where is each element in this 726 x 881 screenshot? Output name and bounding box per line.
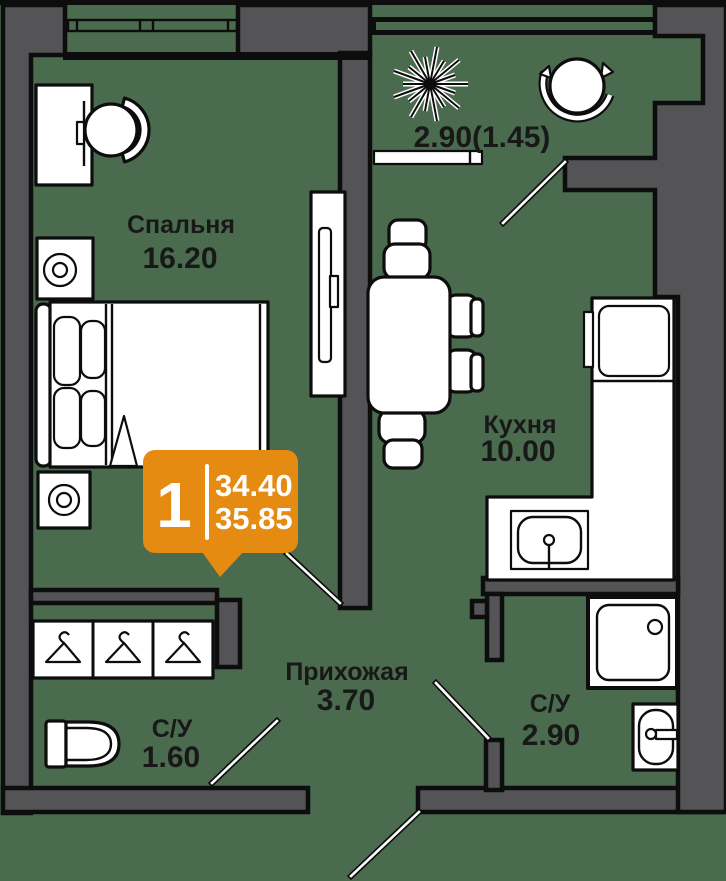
pillow xyxy=(54,317,80,385)
room-name: С/У xyxy=(530,690,571,718)
chair-icon xyxy=(379,410,425,468)
nightstand-lamp-icon xyxy=(38,472,90,528)
badge-living-area: 34.40 xyxy=(215,468,293,503)
table-top xyxy=(368,277,450,413)
badge-rooms-count: 1 xyxy=(156,469,192,541)
washbasin-icon xyxy=(633,704,678,770)
floor-plan: Спальня 16.20 2.90(1.45) Кухня 10.00 При… xyxy=(0,0,726,881)
badge-total-area: 35.85 xyxy=(215,501,293,536)
room-area: 2.90 xyxy=(522,719,580,752)
badge-divider xyxy=(205,464,209,540)
pillow xyxy=(81,321,105,378)
closet-icon xyxy=(33,621,213,678)
room-area: 10.00 xyxy=(480,435,555,468)
chair-icon xyxy=(384,220,430,279)
wall-bath-large-stub xyxy=(486,740,502,790)
wall-top-middle xyxy=(238,5,370,55)
room-name: Прихожая xyxy=(285,658,408,686)
room-area: 1.60 xyxy=(142,741,200,774)
bedroom-top-wall-line xyxy=(63,52,370,60)
room-name: Спальня xyxy=(127,211,235,239)
fridge-icon xyxy=(599,306,669,376)
room-label-kitchen: Кухня 10.00 xyxy=(480,411,556,468)
kitchen-sink-icon xyxy=(511,511,588,569)
wall-bottom-left xyxy=(3,788,308,812)
room-name: С/У xyxy=(152,715,193,743)
room-area: 16.20 xyxy=(142,242,217,275)
toilet-icon xyxy=(46,721,119,767)
floor-plan-svg: Спальня 16.20 2.90(1.45) Кухня 10.00 При… xyxy=(0,0,726,881)
wall-closet-side xyxy=(217,600,240,667)
desk-icon xyxy=(36,85,92,185)
room-label-balcony: 2.90(1.45) xyxy=(414,121,551,154)
pillow xyxy=(81,391,105,446)
shower-icon xyxy=(588,597,677,688)
wardrobe-icon xyxy=(311,192,345,396)
pillow xyxy=(54,388,80,448)
bed-icon xyxy=(36,302,268,467)
wall-bedroom-bottom xyxy=(31,590,217,603)
room-area: 3.70 xyxy=(317,684,375,717)
room-area: 2.90(1.45) xyxy=(414,121,551,154)
wall-bath-large-notch xyxy=(472,601,487,617)
fridge-handle xyxy=(584,312,593,367)
nightstand-lamp-icon xyxy=(37,238,93,299)
